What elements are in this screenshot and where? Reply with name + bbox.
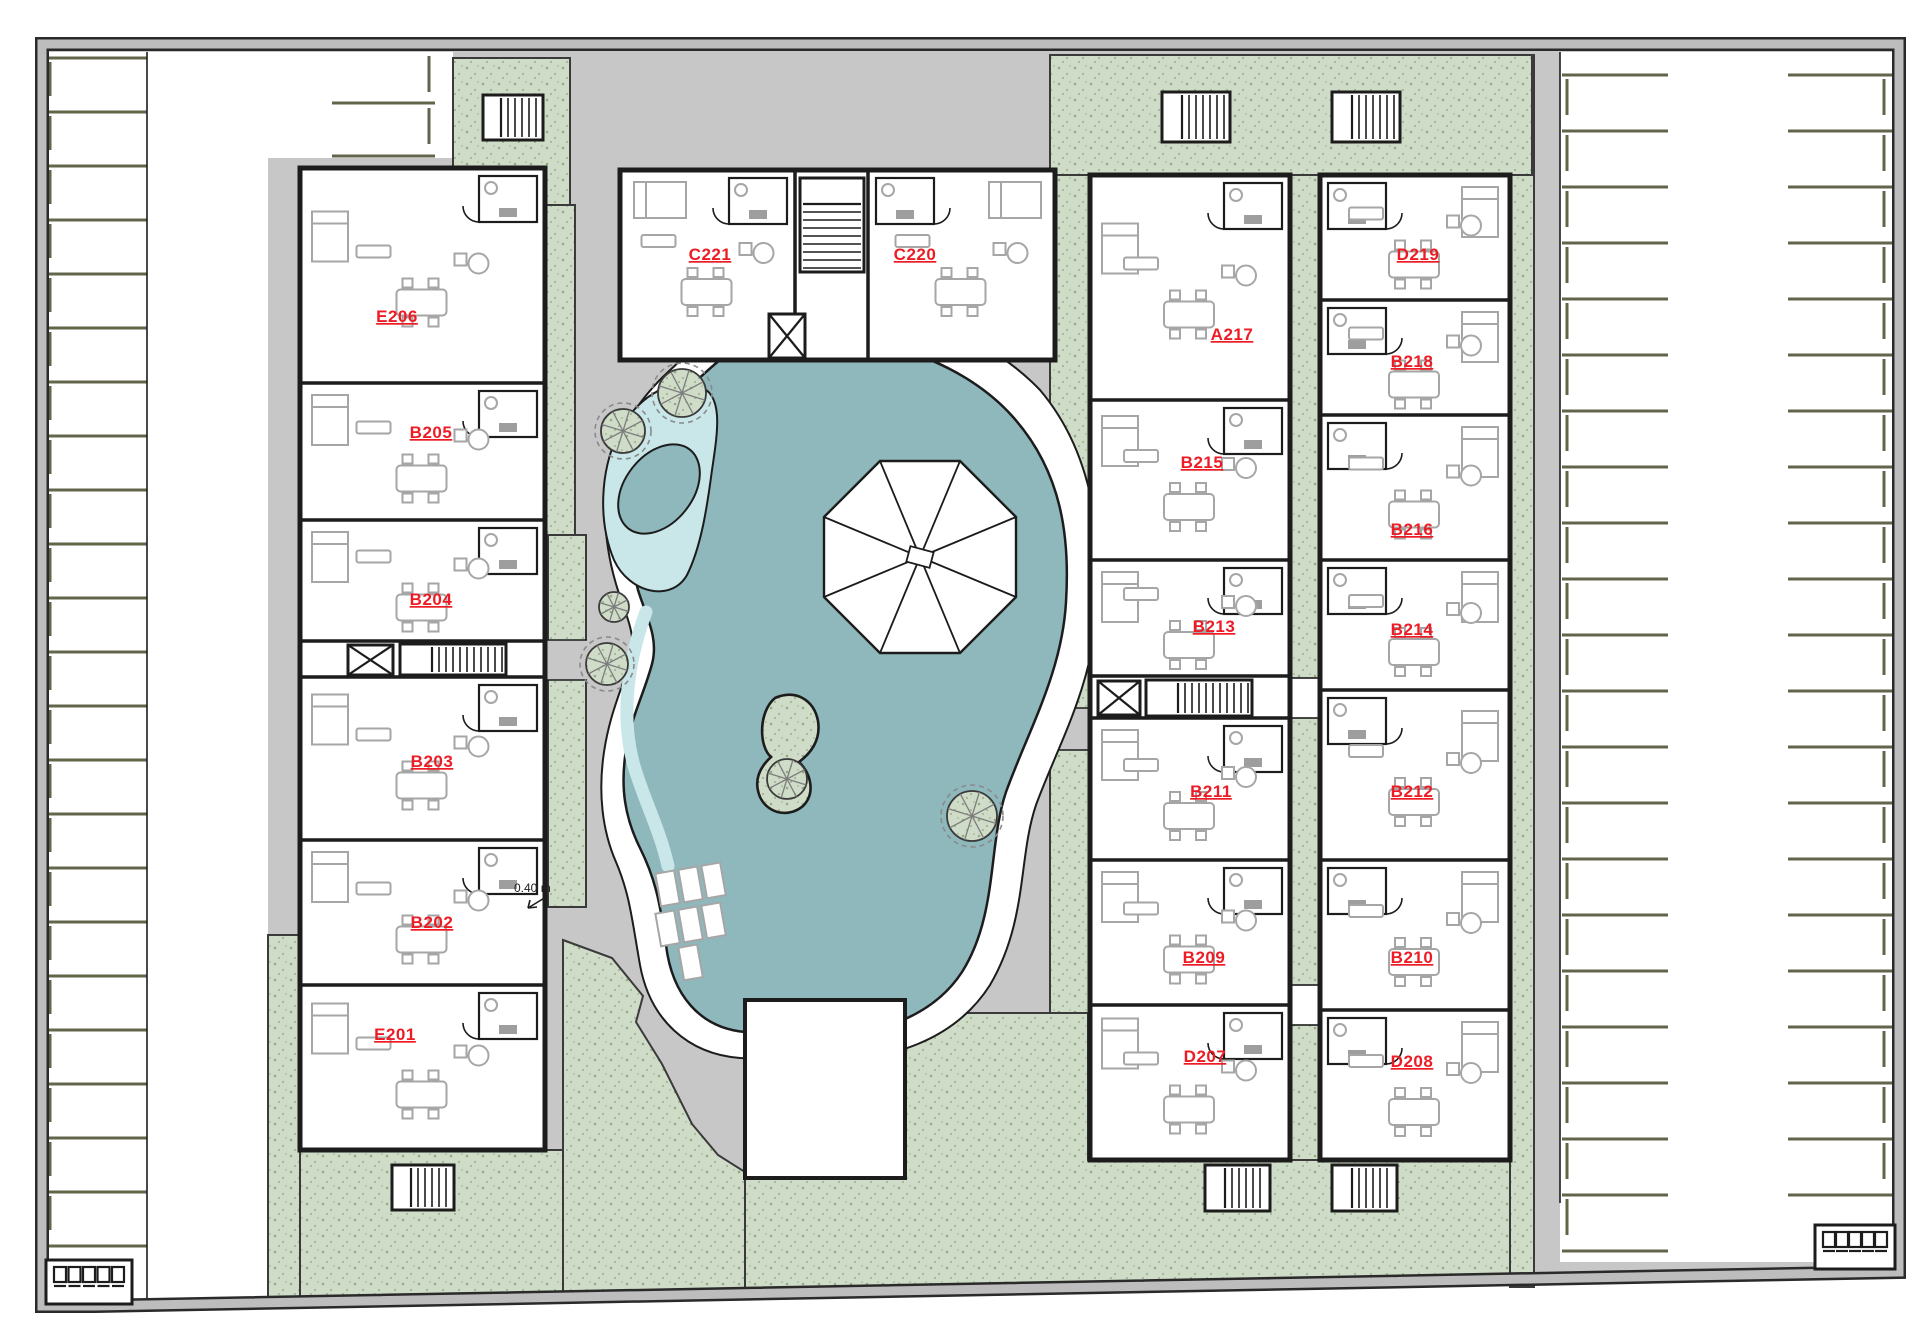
sofa [1124, 450, 1158, 462]
east-parking-stripes-outer [1788, 75, 1892, 1195]
chair [942, 268, 952, 277]
west-core [348, 644, 506, 675]
chair [1395, 817, 1405, 826]
chair [714, 268, 724, 277]
armchair [1008, 243, 1028, 263]
chair [429, 455, 439, 464]
unit-label-c221: C221 [689, 245, 732, 264]
side-table [455, 559, 467, 571]
bath-fixture [1244, 1045, 1262, 1054]
sofa [1349, 328, 1383, 340]
armchair [1236, 458, 1256, 478]
chair [1196, 660, 1206, 669]
chair [429, 1110, 439, 1119]
chair [1170, 330, 1180, 339]
sofa [1349, 458, 1383, 470]
unit-label-b210: B210 [1391, 948, 1434, 967]
side-table [455, 737, 467, 749]
sink [485, 999, 497, 1011]
chair [1395, 977, 1405, 986]
chair [1421, 817, 1431, 826]
sofa [1124, 1053, 1158, 1065]
dining-table [1164, 803, 1214, 829]
side-table [1447, 216, 1459, 228]
bed [989, 182, 1041, 218]
chair [942, 307, 952, 316]
chair [968, 307, 978, 316]
armchair [469, 737, 489, 757]
chair [1196, 831, 1206, 840]
stairs [483, 95, 543, 140]
sofa [1124, 759, 1158, 771]
dining-table [1164, 494, 1214, 520]
unit-label-b204: B204 [410, 590, 453, 609]
sofa [357, 883, 391, 895]
sink [485, 691, 497, 703]
chair [403, 279, 413, 288]
chair [403, 455, 413, 464]
green-strip [545, 205, 575, 537]
chair [429, 494, 439, 503]
west-parking-field [42, 52, 268, 1300]
chair [1421, 1088, 1431, 1097]
chair [1421, 667, 1431, 676]
chair [1170, 975, 1180, 984]
sink [1230, 1019, 1242, 1031]
sink [1230, 732, 1242, 744]
armchair [1236, 266, 1256, 286]
bath-fixture [499, 208, 517, 217]
side-table [1447, 603, 1459, 615]
chair [1196, 975, 1206, 984]
east-core [1098, 680, 1252, 716]
dining-table [397, 773, 447, 799]
parasol [824, 461, 1016, 653]
bed [312, 1004, 348, 1054]
armchair [469, 430, 489, 450]
chair [1170, 1125, 1180, 1134]
side-table [1222, 596, 1234, 608]
side-table [455, 430, 467, 442]
chair [1196, 483, 1206, 492]
chair [1395, 1088, 1405, 1097]
dining-table [1389, 372, 1439, 398]
armchair [1461, 753, 1481, 773]
green-band-north [1050, 55, 1532, 175]
chair [688, 307, 698, 316]
chair [1170, 522, 1180, 531]
side-table [994, 243, 1006, 255]
sink [1334, 429, 1346, 441]
bed [312, 532, 348, 582]
side-table [1222, 767, 1234, 779]
unit-label-c220: C220 [894, 245, 937, 264]
chair [429, 801, 439, 810]
chair [1421, 938, 1431, 947]
bath-fixture [1348, 730, 1366, 739]
side-table [1447, 466, 1459, 478]
chair [1196, 330, 1206, 339]
unit-label-b209: B209 [1183, 948, 1226, 967]
bath-fixture [896, 210, 914, 219]
bed [312, 695, 348, 745]
dining-table [682, 279, 732, 305]
chair [403, 1110, 413, 1119]
green-strip [1510, 55, 1534, 1287]
sofa [1124, 258, 1158, 270]
chair [1170, 483, 1180, 492]
bath-fixture [499, 423, 517, 432]
chair [1395, 667, 1405, 676]
chair [1421, 400, 1431, 409]
unit-label-a217: A217 [1211, 325, 1254, 344]
chair [1170, 1086, 1180, 1095]
green-strip [548, 535, 586, 907]
unit-label-b218: B218 [1391, 352, 1434, 371]
chair [403, 801, 413, 810]
sofa [1349, 905, 1383, 917]
bath-fixture [499, 560, 517, 569]
chair [1170, 660, 1180, 669]
chair [1170, 792, 1180, 801]
stairs [800, 178, 864, 272]
sofa [357, 729, 391, 741]
chair [429, 1071, 439, 1080]
unit-label-e206: E206 [376, 307, 418, 326]
unit-label-b216: B216 [1391, 520, 1434, 539]
sofa [357, 246, 391, 258]
unit-label-d219: D219 [1397, 245, 1440, 264]
armchair [1236, 1061, 1256, 1081]
unit-label-b203: B203 [411, 752, 454, 771]
side-table [1222, 911, 1234, 923]
chair [1196, 1125, 1206, 1134]
floor-plan-page: E206 B205 B204 B203 B202 E201 C221 C220 … [0, 0, 1932, 1322]
dining-table [1164, 1097, 1214, 1123]
sofa [1349, 745, 1383, 757]
dining-table [397, 1082, 447, 1108]
depth-label: 0.40 m [514, 881, 551, 895]
unit-label-b202: B202 [411, 913, 454, 932]
unit-label-b205: B205 [410, 423, 453, 442]
sofa [1349, 595, 1383, 607]
armchair [1236, 911, 1256, 931]
bath-fixture [1244, 758, 1262, 767]
bath-fixture [499, 1025, 517, 1034]
chair [1196, 1086, 1206, 1095]
armchair [469, 1046, 489, 1066]
side-table [1447, 753, 1459, 765]
sofa [357, 551, 391, 563]
sink [1334, 574, 1346, 586]
armchair [469, 254, 489, 274]
sofa [1349, 208, 1383, 220]
unit-label-b214: B214 [1391, 620, 1434, 639]
side-table [1447, 913, 1459, 925]
sink [1334, 874, 1346, 886]
sink [485, 854, 497, 866]
chair [1395, 280, 1405, 289]
side-table [455, 1046, 467, 1058]
armchair [1461, 216, 1481, 236]
bed [312, 852, 348, 902]
dining-table [936, 279, 986, 305]
sink [1334, 704, 1346, 716]
chair [1421, 280, 1431, 289]
chair [403, 955, 413, 964]
north-road [147, 52, 453, 158]
chair [714, 307, 724, 316]
chair [429, 279, 439, 288]
bed [634, 182, 686, 218]
armchair [1461, 1063, 1481, 1083]
bath-fixture [499, 717, 517, 726]
bed [312, 395, 348, 445]
chair [1170, 831, 1180, 840]
chair [1421, 491, 1431, 500]
dining-table [1389, 639, 1439, 665]
sink [882, 184, 894, 196]
sink [1334, 1024, 1346, 1036]
side-table [1447, 1063, 1459, 1075]
sink [485, 534, 497, 546]
sofa [1124, 588, 1158, 600]
chair [1196, 522, 1206, 531]
side-table [455, 254, 467, 266]
armchair [754, 243, 774, 263]
chair [1196, 936, 1206, 945]
chair [403, 1071, 413, 1080]
chair [1170, 621, 1180, 630]
sofa [357, 422, 391, 434]
unit-label-e201: E201 [374, 1025, 416, 1044]
sink [485, 397, 497, 409]
dining-table [1389, 1099, 1439, 1125]
pool-house [745, 1000, 905, 1178]
sink [1230, 874, 1242, 886]
dining-table [397, 466, 447, 492]
armchair [469, 891, 489, 911]
chair [968, 268, 978, 277]
unit-label-d208: D208 [1391, 1052, 1434, 1071]
sink [485, 182, 497, 194]
bath-fixture [749, 210, 767, 219]
side-table [1222, 458, 1234, 470]
bed [312, 212, 348, 262]
floor-plan-canvas: E206 B205 B204 B203 B202 E201 C221 C220 … [0, 0, 1932, 1322]
unit-label-b211: B211 [1190, 782, 1232, 801]
chair [1170, 291, 1180, 300]
bath-fixture [1244, 440, 1262, 449]
sink [1230, 189, 1242, 201]
sink [735, 184, 747, 196]
bath-fixture [1244, 900, 1262, 909]
sink [1334, 189, 1346, 201]
chair [1395, 1127, 1405, 1136]
stairs [392, 1165, 454, 1210]
chair [1170, 936, 1180, 945]
chair [1395, 491, 1405, 500]
armchair [1461, 466, 1481, 486]
armchair [1236, 596, 1256, 616]
chair [1395, 400, 1405, 409]
chair [1421, 977, 1431, 986]
sink [1230, 574, 1242, 586]
chair [429, 623, 439, 632]
armchair [1236, 767, 1256, 787]
unit-label-b213: B213 [1193, 617, 1236, 636]
side-table [455, 891, 467, 903]
chair [1196, 291, 1206, 300]
chair [403, 494, 413, 503]
unit-label-b212: B212 [1391, 782, 1434, 801]
sink [1334, 314, 1346, 326]
armchair [1461, 603, 1481, 623]
sink [1230, 414, 1242, 426]
side-table [1222, 266, 1234, 278]
unit-label-b215: B215 [1181, 453, 1224, 472]
side-table [1447, 336, 1459, 348]
sofa [642, 235, 676, 247]
chair [1421, 1127, 1431, 1136]
bed [1102, 730, 1138, 780]
east-parking-field [1560, 52, 1893, 1262]
walkway [545, 640, 587, 680]
armchair [1461, 336, 1481, 356]
chair [688, 268, 698, 277]
bath-fixture [1348, 340, 1366, 349]
chair [403, 623, 413, 632]
chair [1395, 938, 1405, 947]
armchair [1461, 913, 1481, 933]
unit-label-d207: D207 [1184, 1047, 1227, 1066]
chair [429, 955, 439, 964]
dining-table [1164, 302, 1214, 328]
chair [429, 318, 439, 327]
sofa [1124, 903, 1158, 915]
armchair [469, 559, 489, 579]
side-table [740, 243, 752, 255]
sofa [1349, 1055, 1383, 1067]
bath-fixture [1244, 215, 1262, 224]
